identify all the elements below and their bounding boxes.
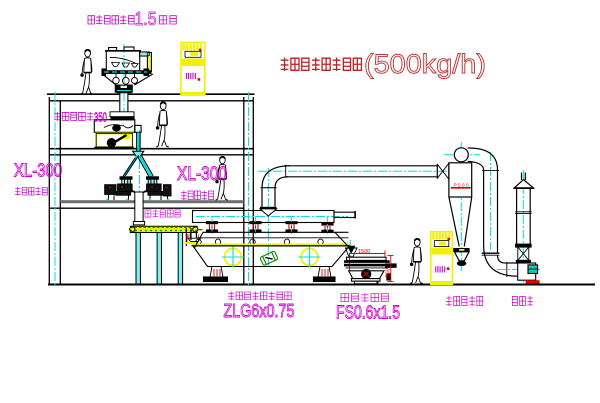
svg-text:FS0.6x1.5: FS0.6x1.5	[336, 303, 400, 323]
svg-text:XL-300: XL-300	[177, 164, 227, 185]
svg-text:1500: 1500	[358, 249, 370, 255]
svg-text:ZLG6x0.75: ZLG6x0.75	[224, 301, 295, 321]
svg-text:1.5: 1.5	[135, 9, 157, 29]
svg-text:XL-300: XL-300	[14, 160, 62, 181]
svg-text:(500kg/h): (500kg/h)	[364, 49, 486, 79]
svg-text:500: 500	[385, 268, 391, 277]
svg-text:350: 350	[94, 110, 107, 125]
